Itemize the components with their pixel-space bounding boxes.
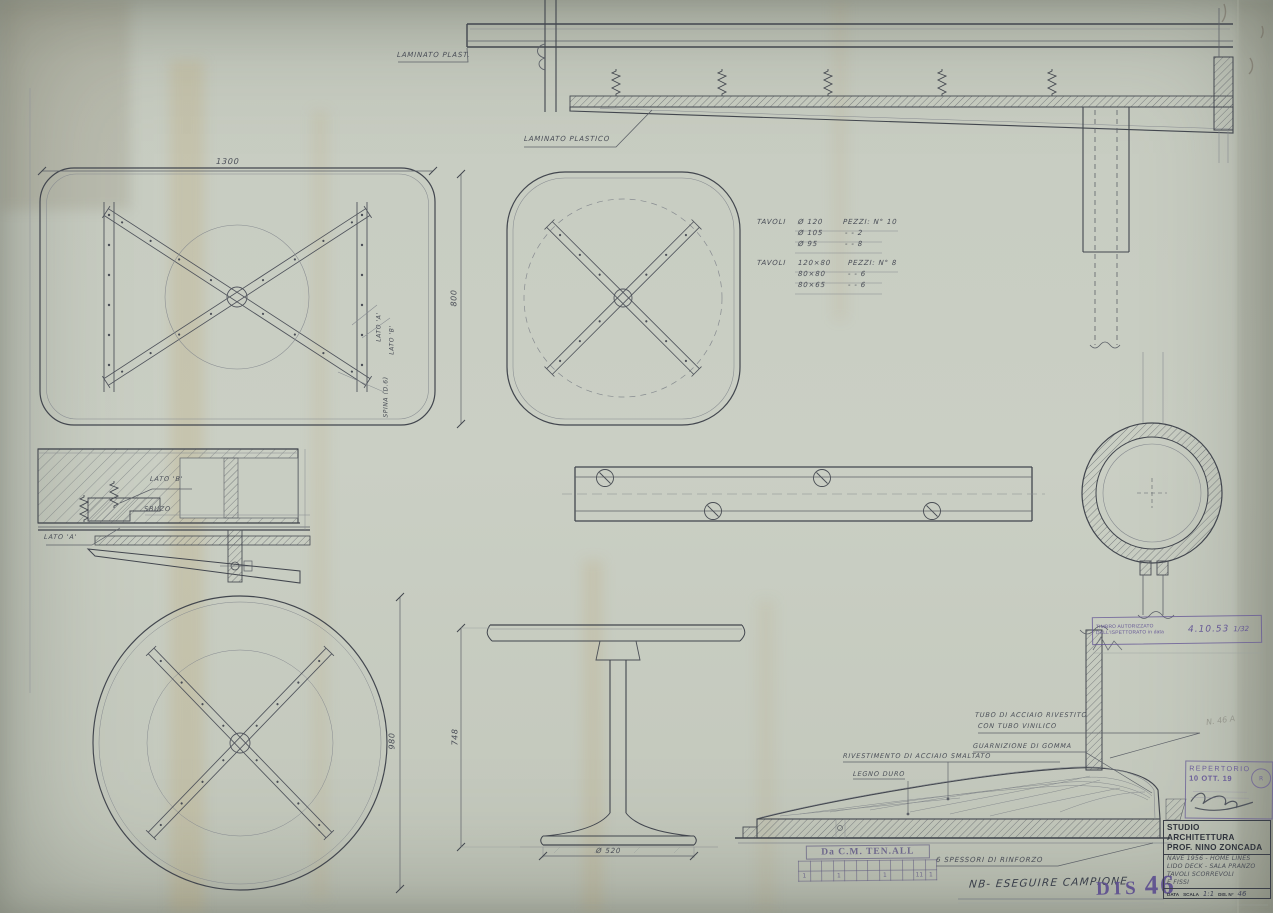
- stamp-sig: 1/32: [1233, 625, 1249, 633]
- circular-table-plan: [93, 593, 404, 893]
- plan-label-spina: SPINA (D.6): [383, 376, 390, 417]
- dis-label: DIS. N°: [1218, 892, 1233, 897]
- section-label-lato-a: LATO 'A': [44, 533, 78, 541]
- scala-value: 1:1: [1203, 890, 1214, 898]
- stamp-date: 4.10.53: [1188, 624, 1229, 635]
- label-laminato-plast: LAMINATO PLAST.: [397, 51, 471, 59]
- note-cell: - - 8: [845, 240, 863, 248]
- project-line-3: TAVOLI SCORREVOLI: [1164, 871, 1270, 879]
- label-guarnizione: GUARNIZIONE DI GOMMA: [973, 742, 1072, 750]
- architect-name: PROF. NINO ZONCADA: [1164, 843, 1270, 855]
- note-cell: 120×80: [798, 259, 831, 267]
- note-cell: - - 2: [845, 229, 863, 237]
- note-cell: - - 6: [848, 281, 866, 289]
- note-cell: TAVOLI: [757, 218, 787, 226]
- distribution-stamp-title: Da C.M. TEN.ALL: [806, 844, 930, 859]
- tube-ring-detail: [1082, 352, 1222, 619]
- project-line-1: NAVE 1956 - HOME LINES: [1164, 855, 1270, 863]
- note-cell: Ø 105: [798, 229, 824, 237]
- label-tubo-acciaio-1: TUBO DI ACCIAIO RIVESTITO: [975, 711, 1088, 719]
- section-label-lato-b: LATO 'B': [150, 475, 184, 483]
- note-cell: Ø 95: [798, 240, 818, 248]
- dim-square-height: 800: [450, 289, 459, 306]
- label-spessori: 6 SPESSORI DI RINFORZO: [936, 856, 1044, 864]
- dis-value: 46: [1238, 890, 1247, 898]
- dis-word: DIS: [1096, 878, 1140, 901]
- section-label-sbuzo: SBUZO: [144, 505, 171, 513]
- note-cell: Ø 120: [798, 218, 824, 226]
- studio-name: STUDIO ARCHITETTURA: [1164, 821, 1270, 843]
- repertorio-stamp: REPERTORIO 10 OTT. 19 R: [1185, 761, 1273, 820]
- label-legno-duro: LEGNO DURO: [853, 770, 906, 778]
- base-dome-section: [735, 626, 1200, 866]
- dim-rect-width: 1300: [216, 157, 240, 166]
- title-block-hatch-patch: [1166, 799, 1186, 820]
- edge-joint-section-detail: [38, 449, 310, 583]
- label-tubo-acciaio-2: CON TUBO VINILICO: [978, 722, 1057, 730]
- plan-label-lato-a: LATO 'A': [376, 312, 383, 342]
- signature-icon: [1187, 784, 1263, 813]
- top-edge-section-view: [398, 0, 1233, 348]
- distribution-grid: 111111: [798, 859, 937, 881]
- project-line-4: E FISSI: [1164, 879, 1270, 887]
- rail-detail: [562, 467, 1045, 521]
- drawing-sheet: LAMINATO PLAST. LAMINATO PLASTICO 1300 8…: [0, 0, 1273, 913]
- dim-circle-diameter: 980: [388, 732, 397, 749]
- stamp-text: TIMBRO AUTORIZZATO DALL'ISPETTORATO in d…: [1096, 624, 1184, 637]
- drawing-linework: [0, 0, 1273, 913]
- table-elevation: [457, 624, 745, 860]
- distribution-stamp: Da C.M. TEN.ALL 111111: [798, 844, 937, 881]
- label-rivestimento: RIVESTIMENTO DI ACCIAIO SMALTATO: [843, 752, 992, 760]
- scala-label: SCALA: [1183, 892, 1199, 897]
- label-laminato-plastico: LAMINATO PLASTICO: [524, 135, 610, 143]
- project-line-2: LIDO DECK - SALA PRANZO: [1164, 863, 1270, 871]
- note-cell: PEZZI: N° 8: [848, 259, 898, 267]
- dim-base-diameter: Ø 520: [596, 847, 622, 855]
- note-cell: - - 6: [848, 270, 866, 278]
- rectangular-table-plan: [38, 167, 437, 425]
- plan-label-lato-b: LATO 'B': [389, 325, 396, 355]
- dim-table-height: 748: [451, 728, 460, 745]
- note-cell: 80×65: [798, 281, 826, 289]
- timbro-autorizzato-stamp: TIMBRO AUTORIZZATO DALL'ISPETTORATO in d…: [1092, 615, 1262, 645]
- square-table-plan: [457, 170, 740, 428]
- data-label: DATA: [1167, 892, 1179, 897]
- title-block: STUDIO ARCHITETTURA PROF. NINO ZONCADA N…: [1163, 820, 1271, 899]
- note-cell: PEZZI: N° 10: [843, 218, 898, 226]
- note-cell: 80×80: [798, 270, 826, 278]
- note-cell: TAVOLI: [757, 259, 787, 267]
